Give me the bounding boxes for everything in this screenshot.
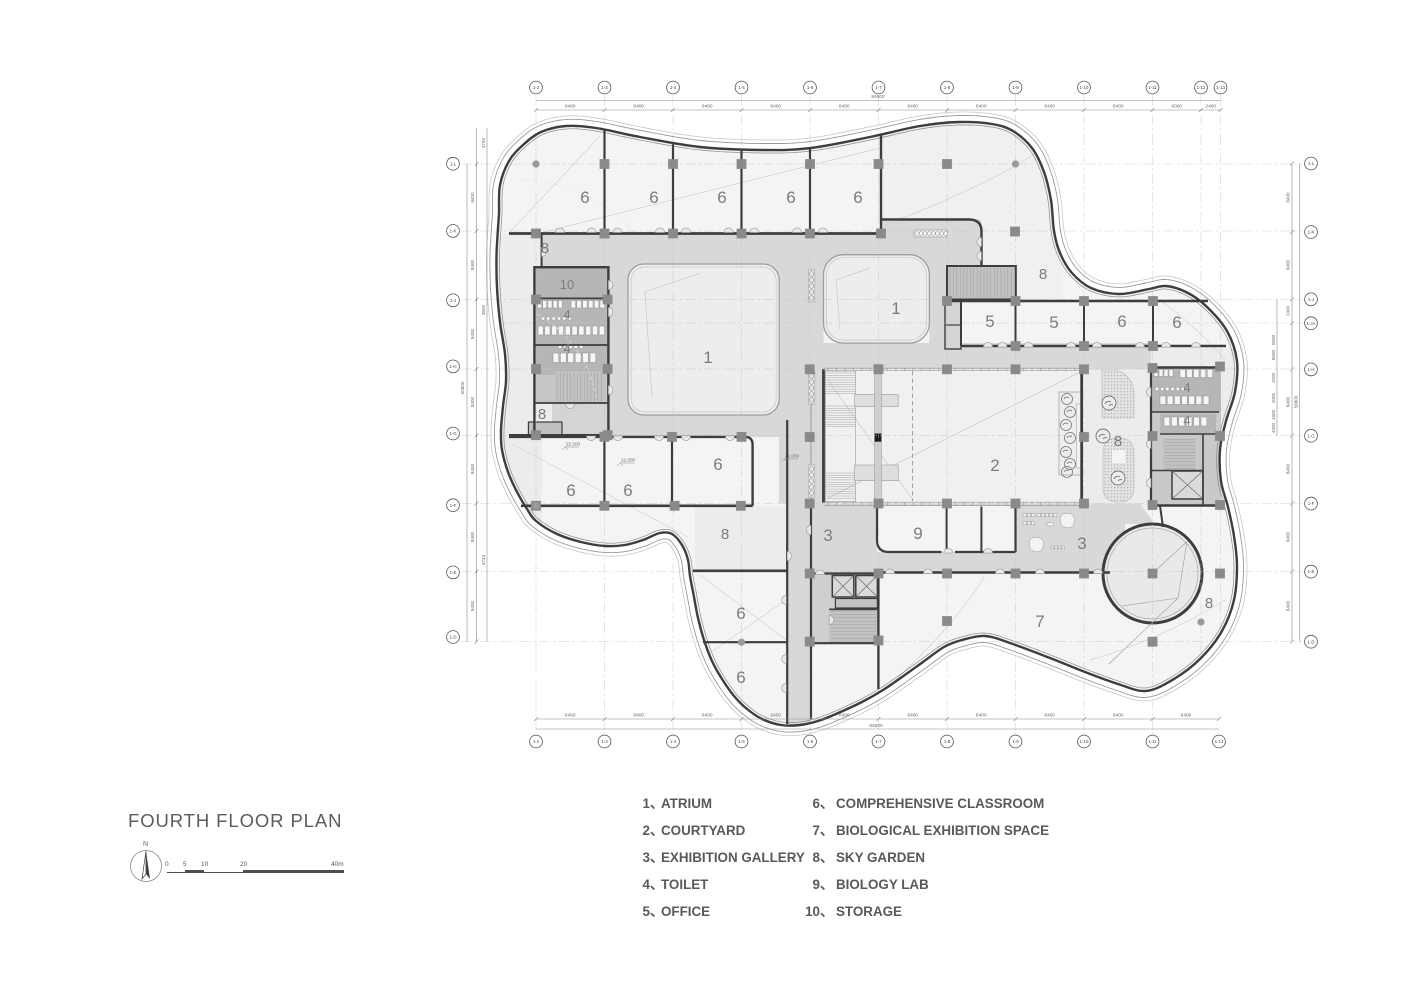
svg-text:9: 9 — [913, 524, 922, 543]
svg-text:8400: 8400 — [1286, 192, 1291, 203]
svg-text:8400: 8400 — [1044, 713, 1055, 719]
svg-text:22.200: 22.200 — [566, 442, 580, 447]
svg-text:6: 6 — [649, 188, 658, 207]
svg-text:COURTYARD: COURTYARD — [661, 823, 746, 838]
svg-text:8400: 8400 — [633, 713, 644, 719]
svg-text:7: 7 — [813, 823, 820, 838]
svg-text:1-13: 1-13 — [1215, 739, 1224, 744]
svg-text:2000: 2000 — [1271, 392, 1276, 403]
svg-text:8400: 8400 — [976, 104, 987, 110]
svg-text:1500: 1500 — [1271, 372, 1276, 383]
svg-text:6: 6 — [566, 481, 575, 500]
svg-text:8400: 8400 — [976, 713, 987, 719]
svg-text:BIOLOGY LAB: BIOLOGY LAB — [836, 877, 929, 892]
svg-text:8: 8 — [538, 406, 546, 423]
svg-text:1-L: 1-L — [1308, 161, 1315, 166]
svg-text:1-6: 1-6 — [807, 739, 814, 744]
svg-text:1-12: 1-12 — [1197, 85, 1206, 90]
svg-text:1-3: 1-3 — [601, 739, 608, 744]
svg-text:1-D: 1-D — [1307, 639, 1314, 644]
svg-text:1: 1 — [703, 348, 712, 367]
svg-text:1-4: 1-4 — [670, 739, 677, 744]
svg-text:1-7: 1-7 — [875, 739, 882, 744]
svg-text:8400: 8400 — [1286, 531, 1291, 542]
svg-text:1-D: 1-D — [449, 635, 456, 640]
svg-text:1-5: 1-5 — [738, 739, 745, 744]
svg-text:1-H: 1-H — [1307, 367, 1314, 372]
svg-text:、: 、 — [820, 904, 833, 919]
svg-text:5: 5 — [1049, 313, 1058, 332]
svg-text:8400: 8400 — [1113, 713, 1124, 719]
svg-text:84600: 84600 — [869, 723, 883, 729]
svg-text:5800: 5800 — [1271, 334, 1276, 345]
svg-text:1-H: 1-H — [449, 364, 456, 369]
svg-text:1-F: 1-F — [450, 503, 457, 508]
svg-text:FOURTH FLOOR PLAN: FOURTH FLOOR PLAN — [128, 810, 342, 831]
svg-text:8400: 8400 — [470, 600, 475, 611]
svg-text:2: 2 — [990, 456, 999, 475]
svg-text:8400: 8400 — [839, 713, 850, 719]
svg-text:6: 6 — [853, 188, 862, 207]
svg-text:1-11: 1-11 — [1148, 739, 1157, 744]
svg-text:21.000: 21.000 — [785, 454, 799, 459]
svg-text:EXHIBITION GALLERY: EXHIBITION GALLERY — [661, 850, 805, 865]
svg-text:10: 10 — [201, 861, 209, 868]
svg-text:50800: 50800 — [460, 381, 465, 394]
svg-text:1-G: 1-G — [1307, 433, 1315, 438]
svg-text:1-13: 1-13 — [1216, 85, 1225, 90]
svg-text:8400: 8400 — [770, 104, 781, 110]
svg-text:3: 3 — [823, 526, 832, 545]
svg-text:10: 10 — [560, 277, 574, 292]
svg-text:1-E: 1-E — [450, 570, 457, 575]
svg-text:1-8: 1-8 — [944, 85, 951, 90]
svg-text:22.000: 22.000 — [621, 458, 635, 463]
svg-text:1-K: 1-K — [1308, 230, 1315, 235]
svg-text:N: N — [143, 841, 148, 848]
svg-text:0: 0 — [165, 861, 169, 868]
svg-text:8400: 8400 — [702, 104, 713, 110]
svg-text:、: 、 — [820, 823, 833, 838]
svg-text:4: 4 — [1183, 380, 1190, 395]
svg-text:1-F: 1-F — [1308, 501, 1315, 506]
svg-text:1-8: 1-8 — [944, 739, 951, 744]
svg-text:8400: 8400 — [1181, 713, 1192, 719]
svg-text:1-11: 1-11 — [1148, 85, 1157, 90]
svg-text:OFFICE: OFFICE — [661, 904, 710, 919]
svg-text:8400: 8400 — [1044, 104, 1055, 110]
svg-text:STORAGE: STORAGE — [836, 904, 902, 919]
svg-text:7: 7 — [1035, 612, 1044, 631]
svg-text:SKY GARDEN: SKY GARDEN — [836, 850, 925, 865]
svg-text:1800: 1800 — [1271, 409, 1276, 420]
svg-text:、: 、 — [820, 850, 833, 865]
svg-text:5: 5 — [985, 312, 994, 331]
svg-text:8400: 8400 — [470, 531, 475, 542]
svg-text:8: 8 — [541, 240, 549, 257]
svg-text:6000: 6000 — [1171, 104, 1182, 110]
svg-text:2400: 2400 — [1205, 104, 1216, 110]
svg-text:1-10: 1-10 — [1080, 85, 1089, 90]
svg-text:1-10: 1-10 — [1080, 739, 1089, 744]
svg-text:1-K: 1-K — [450, 229, 457, 234]
svg-text:6000: 6000 — [1271, 349, 1276, 360]
svg-text:1-J: 1-J — [1308, 297, 1314, 302]
svg-text:4: 4 — [1183, 413, 1190, 428]
svg-text:1-L: 1-L — [450, 161, 457, 166]
svg-text:1-2: 1-2 — [533, 85, 540, 90]
svg-text:6: 6 — [1117, 312, 1126, 331]
svg-text:1-E: 1-E — [1308, 569, 1315, 574]
svg-text:3: 3 — [1077, 534, 1086, 553]
svg-text:6: 6 — [813, 796, 820, 811]
svg-text:2400: 2400 — [1286, 305, 1291, 316]
svg-text:4: 4 — [563, 341, 570, 356]
svg-text:8: 8 — [1205, 595, 1213, 612]
svg-text:8400: 8400 — [1286, 396, 1291, 407]
svg-text:1-9: 1-9 — [1012, 85, 1019, 90]
svg-text:8: 8 — [721, 526, 729, 543]
svg-text:6: 6 — [786, 188, 795, 207]
svg-text:6: 6 — [717, 188, 726, 207]
svg-text:84600: 84600 — [871, 94, 885, 100]
svg-text:8400: 8400 — [633, 104, 644, 110]
svg-text:4300: 4300 — [1271, 422, 1276, 433]
svg-text:6: 6 — [736, 604, 745, 623]
svg-text:ATRIUM: ATRIUM — [661, 796, 712, 811]
svg-text:4743: 4743 — [481, 554, 486, 565]
svg-text:8: 8 — [1114, 433, 1122, 450]
svg-text:6: 6 — [623, 481, 632, 500]
svg-text:8400: 8400 — [470, 259, 475, 270]
svg-text:BIOLOGICAL EXHIBITION SPACE: BIOLOGICAL EXHIBITION SPACE — [836, 823, 1049, 838]
svg-text:8400: 8400 — [470, 463, 475, 474]
svg-text:、: 、 — [820, 796, 833, 811]
svg-text:8400: 8400 — [1113, 104, 1124, 110]
svg-text:8400: 8400 — [702, 713, 713, 719]
svg-text:1-6: 1-6 — [807, 85, 814, 90]
svg-text:8: 8 — [1039, 266, 1047, 283]
svg-text:1-JA: 1-JA — [1306, 321, 1315, 326]
svg-text:10: 10 — [805, 904, 820, 919]
svg-text:3600: 3600 — [481, 304, 486, 315]
svg-text:TOILET: TOILET — [661, 877, 709, 892]
svg-text:8400: 8400 — [565, 104, 576, 110]
svg-text:3: 3 — [643, 850, 650, 865]
svg-text:8400: 8400 — [770, 713, 781, 719]
svg-text:4745: 4745 — [481, 137, 486, 148]
svg-text:8400: 8400 — [565, 713, 576, 719]
svg-text:20: 20 — [240, 861, 248, 868]
svg-text:1-J: 1-J — [450, 298, 456, 303]
svg-text:8400: 8400 — [1286, 463, 1291, 474]
svg-text:6: 6 — [736, 668, 745, 687]
svg-text:58800: 58800 — [1294, 395, 1299, 408]
svg-text:1-G: 1-G — [449, 431, 457, 436]
svg-text:8400: 8400 — [907, 713, 918, 719]
svg-text:、: 、 — [820, 877, 833, 892]
svg-text:8400: 8400 — [1286, 600, 1291, 611]
svg-text:1-7: 1-7 — [875, 85, 882, 90]
svg-text:1-9: 1-9 — [1012, 739, 1019, 744]
svg-text:1-4: 1-4 — [670, 85, 677, 90]
svg-text:8400: 8400 — [470, 328, 475, 339]
svg-text:40m: 40m — [331, 861, 344, 868]
svg-text:6: 6 — [1172, 313, 1181, 332]
svg-text:COMPREHENSIVE CLASSROOM: COMPREHENSIVE CLASSROOM — [836, 796, 1044, 811]
svg-text:6: 6 — [713, 455, 722, 474]
svg-text:6: 6 — [580, 188, 589, 207]
svg-text:2: 2 — [643, 823, 650, 838]
svg-text:4: 4 — [563, 307, 570, 322]
svg-text:8400: 8400 — [839, 104, 850, 110]
svg-text:1-3: 1-3 — [601, 85, 608, 90]
svg-text:8400: 8400 — [907, 104, 918, 110]
svg-text:5: 5 — [183, 861, 187, 868]
svg-text:8400: 8400 — [470, 192, 475, 203]
svg-text:1-2: 1-2 — [533, 739, 540, 744]
svg-text:8400: 8400 — [470, 396, 475, 407]
svg-text:1: 1 — [891, 299, 900, 318]
svg-text:9: 9 — [813, 877, 820, 892]
svg-text:8400: 8400 — [1286, 259, 1291, 270]
svg-text:1-5: 1-5 — [738, 85, 745, 90]
